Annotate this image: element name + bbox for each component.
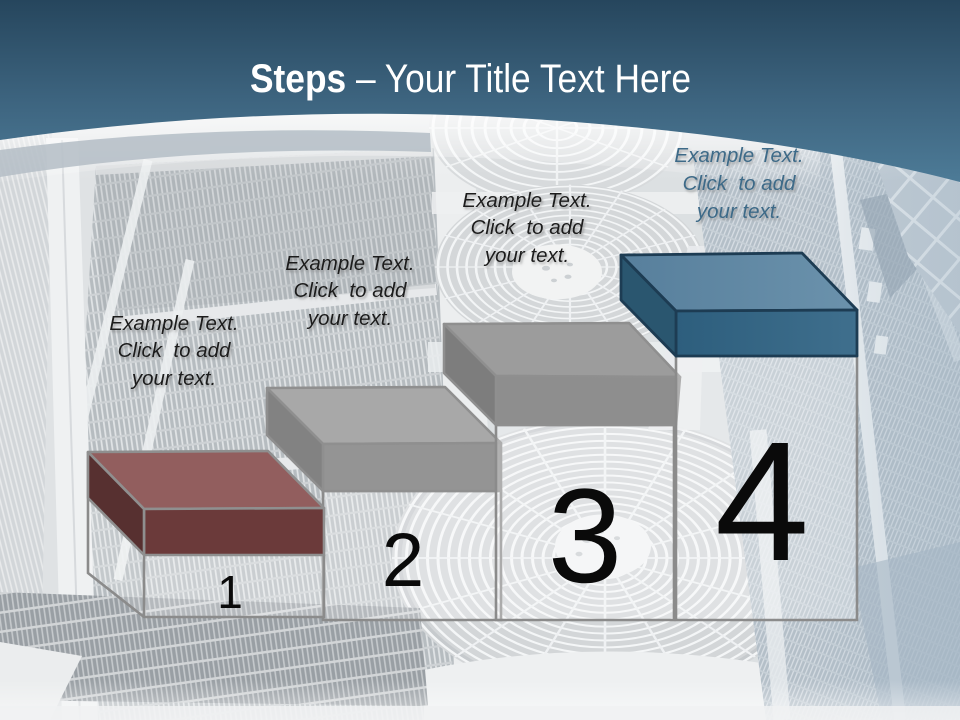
svg-text:Click to add: Click to add [683,172,796,195]
svg-text:4: 4 [715,407,810,597]
svg-text:your text.: your text. [306,307,392,330]
svg-text:Steps – Your Title Text Here: Steps – Your Title Text Here [250,57,691,101]
svg-text:Example Text.: Example Text. [674,144,803,167]
svg-text:Example Text.: Example Text. [285,252,414,275]
svg-text:Click to add: Click to add [471,216,584,239]
svg-text:Click to add: Click to add [294,279,407,302]
svg-text:your text.: your text. [130,367,216,390]
svg-text:Example Text.: Example Text. [109,312,238,335]
svg-text:your text.: your text. [695,200,781,223]
svg-text:your text.: your text. [483,244,569,267]
svg-text:Example Text.: Example Text. [462,189,591,212]
svg-text:Click to add: Click to add [118,339,231,362]
svg-text:3: 3 [548,462,623,611]
svg-text:2: 2 [382,518,424,603]
svg-text:1: 1 [217,566,243,618]
